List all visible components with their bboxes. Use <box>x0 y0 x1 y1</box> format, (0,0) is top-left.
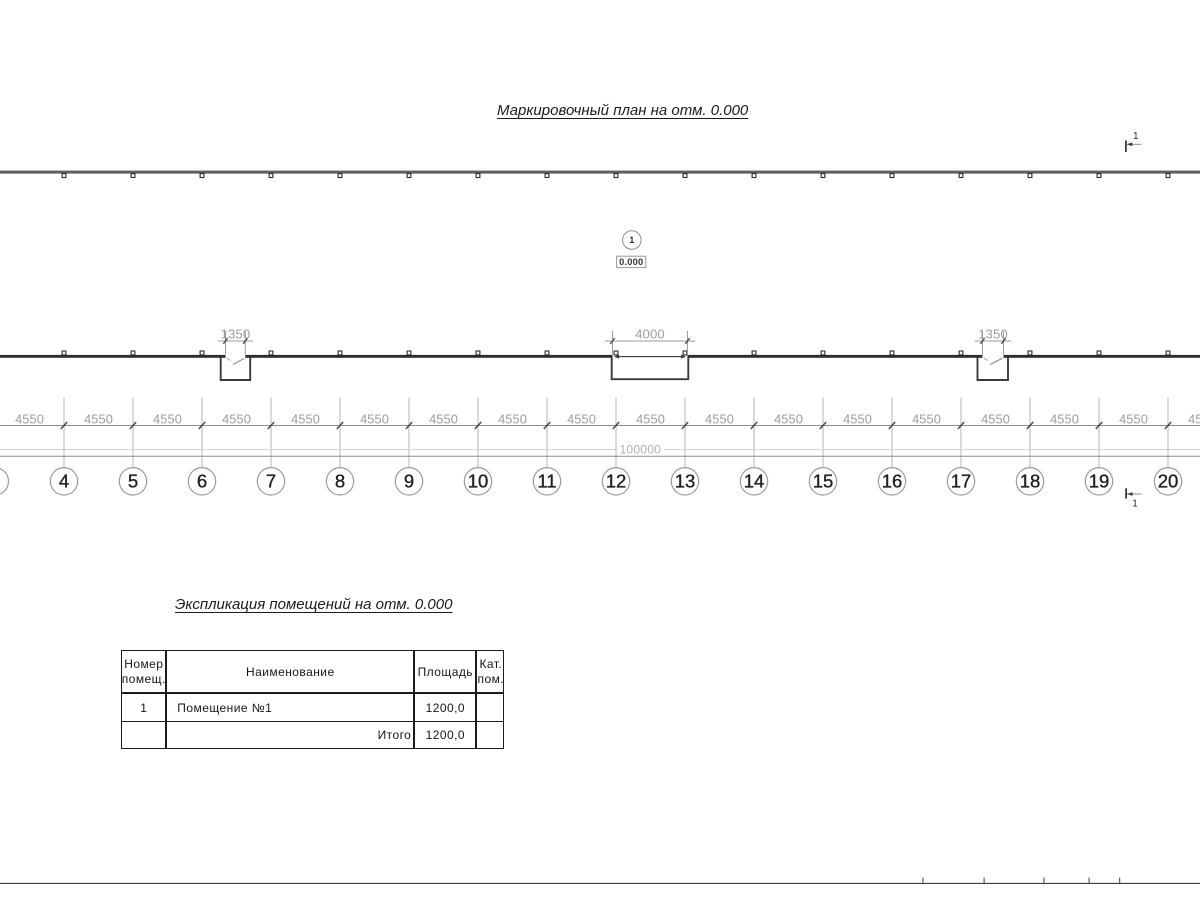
svg-text:4550: 4550 <box>498 411 527 426</box>
svg-text:14: 14 <box>744 471 765 492</box>
svg-text:4550: 4550 <box>843 411 872 426</box>
svg-text:20: 20 <box>1158 471 1179 492</box>
svg-text:17: 17 <box>951 471 972 492</box>
svg-text:4550: 4550 <box>84 411 113 426</box>
svg-text:18: 18 <box>1020 471 1041 492</box>
svg-text:4550: 4550 <box>1050 411 1079 426</box>
svg-text:9: 9 <box>404 471 414 492</box>
svg-text:4550: 4550 <box>15 411 44 426</box>
svg-text:4550: 4550 <box>291 411 320 426</box>
svg-text:1350: 1350 <box>978 327 1008 342</box>
svg-text:4550: 4550 <box>1188 411 1200 426</box>
svg-text:1350: 1350 <box>221 327 251 342</box>
svg-text:1: 1 <box>629 235 634 245</box>
svg-text:12: 12 <box>606 471 627 492</box>
svg-text:19: 19 <box>1089 471 1110 492</box>
svg-text:1: 1 <box>1132 499 1138 510</box>
svg-text:4550: 4550 <box>222 411 251 426</box>
svg-text:4550: 4550 <box>774 411 803 426</box>
svg-text:4550: 4550 <box>1119 411 1148 426</box>
svg-text:16: 16 <box>882 471 903 492</box>
svg-text:4550: 4550 <box>705 411 734 426</box>
svg-text:4550: 4550 <box>360 411 389 426</box>
svg-text:100000: 100000 <box>620 442 662 456</box>
svg-text:7: 7 <box>266 471 276 492</box>
svg-text:15: 15 <box>813 471 834 492</box>
svg-text:1: 1 <box>1133 131 1139 142</box>
svg-text:4550: 4550 <box>153 411 182 426</box>
svg-text:4000: 4000 <box>635 327 665 342</box>
svg-text:4550: 4550 <box>429 411 458 426</box>
svg-text:4550: 4550 <box>981 411 1010 426</box>
svg-text:6: 6 <box>197 471 207 492</box>
svg-text:13: 13 <box>675 471 696 492</box>
svg-text:8: 8 <box>335 471 345 492</box>
svg-text:0.000: 0.000 <box>619 257 643 267</box>
svg-text:4550: 4550 <box>567 411 596 426</box>
svg-text:4550: 4550 <box>636 411 665 426</box>
svg-text:11: 11 <box>537 471 556 492</box>
svg-text:4550: 4550 <box>912 411 941 426</box>
svg-text:10: 10 <box>468 471 489 492</box>
svg-text:4: 4 <box>59 471 69 492</box>
svg-text:5: 5 <box>128 471 138 492</box>
